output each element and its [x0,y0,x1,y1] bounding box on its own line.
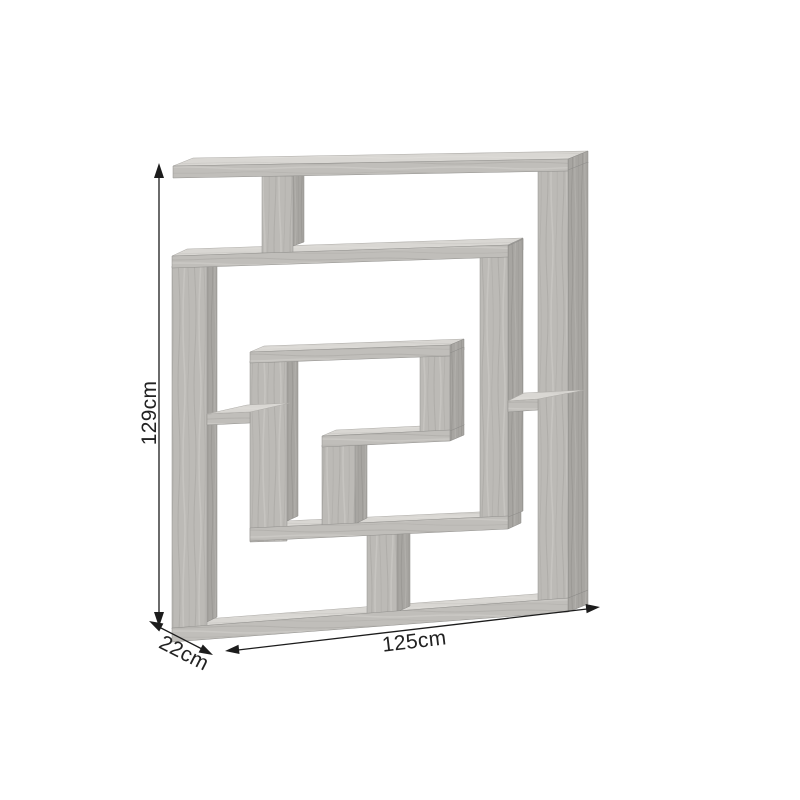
right-panel-side-face [568,162,588,598]
diagram-canvas: 129cm 125cm 22cm [0,0,800,800]
top-divider-side-face [293,171,304,246]
product-dimension-diagram: 129cm 125cm 22cm [0,0,800,800]
arrow-up-icon [154,163,164,178]
left-panel-front [172,265,207,629]
arrow-right-icon [586,604,600,613]
inner-left-board-side-face [287,355,298,521]
height-dimension: 129cm [138,163,164,627]
mid-divider-front [322,444,355,531]
bottom-divider-side-face [397,525,410,612]
bottom-divider-front [367,531,397,616]
center-right-divider-front [480,246,508,519]
arrow-left-icon [225,645,240,654]
arrow-upleft-icon [149,621,163,632]
height-label: 129cm [138,381,161,446]
right-panel-front [538,170,568,609]
inner-left-board-front [250,360,287,542]
width-label: 125cm [381,626,448,656]
center-right-divider-side-face [508,239,523,517]
inner-right-board-side-face [450,347,464,431]
mid-divider-side-face [355,438,367,524]
left-panel-side-face [207,260,217,622]
inner-right-board-front [420,353,450,439]
top-divider-front [262,176,293,253]
bookshelf-illustration [172,151,588,642]
